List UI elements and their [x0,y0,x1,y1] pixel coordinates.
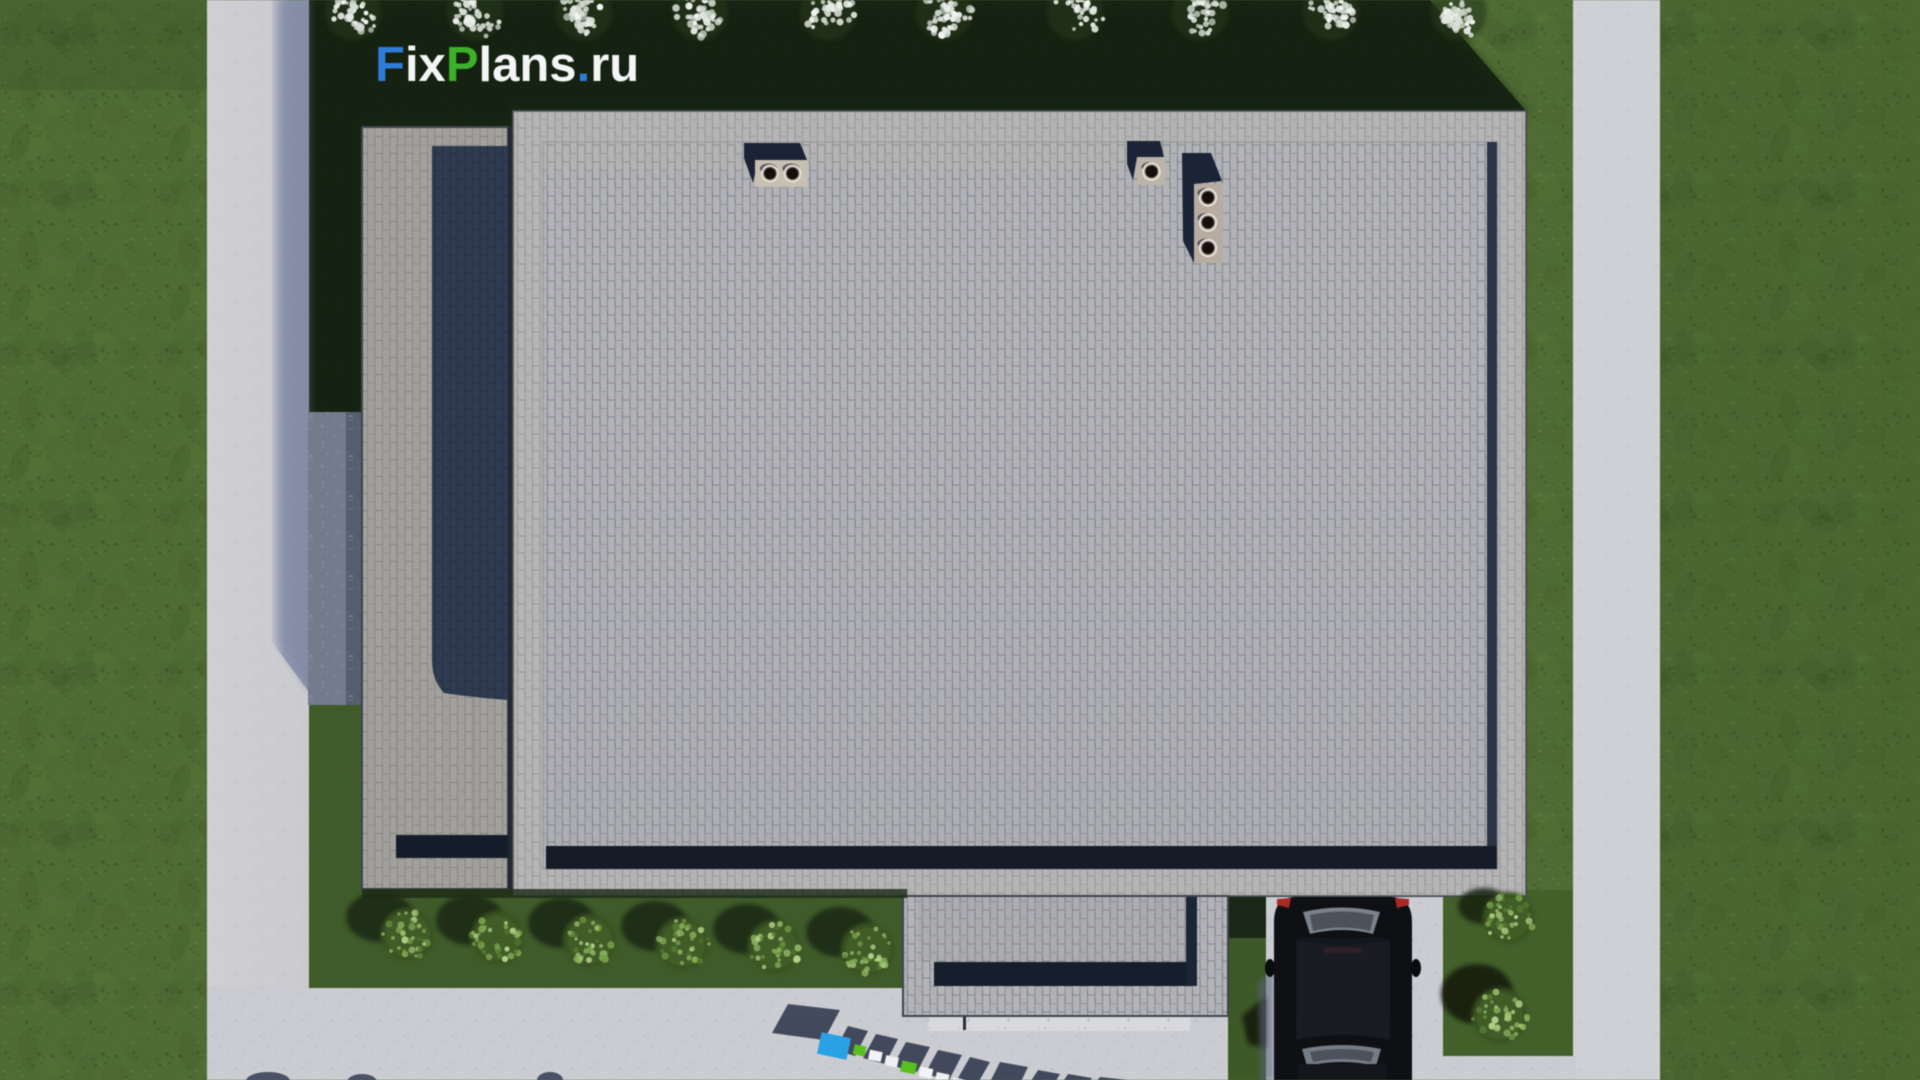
svg-text:FixPlans.ru: FixPlans.ru [375,38,639,92]
